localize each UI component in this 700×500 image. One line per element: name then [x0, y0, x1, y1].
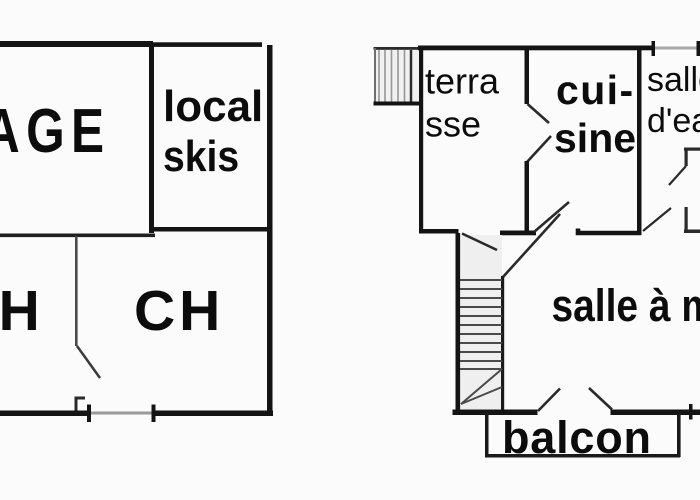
svg-text:cui-: cui- — [556, 67, 635, 113]
svg-text:balcon: balcon — [502, 412, 652, 463]
svg-text:GARAGE: GARAGE — [0, 96, 111, 166]
svg-text:CH: CH — [0, 279, 44, 343]
svg-text:CH: CH — [134, 279, 224, 343]
svg-text:terra: terra — [425, 61, 500, 102]
svg-text:skis: skis — [163, 131, 239, 181]
svg-text:local: local — [163, 82, 263, 131]
svg-text:salle: salle — [647, 61, 700, 99]
svg-text:d'eau: d'eau — [647, 102, 700, 140]
svg-text:salle à m: salle à m — [552, 280, 700, 330]
svg-text:sse: sse — [425, 104, 481, 145]
svg-text:sine: sine — [554, 115, 636, 161]
